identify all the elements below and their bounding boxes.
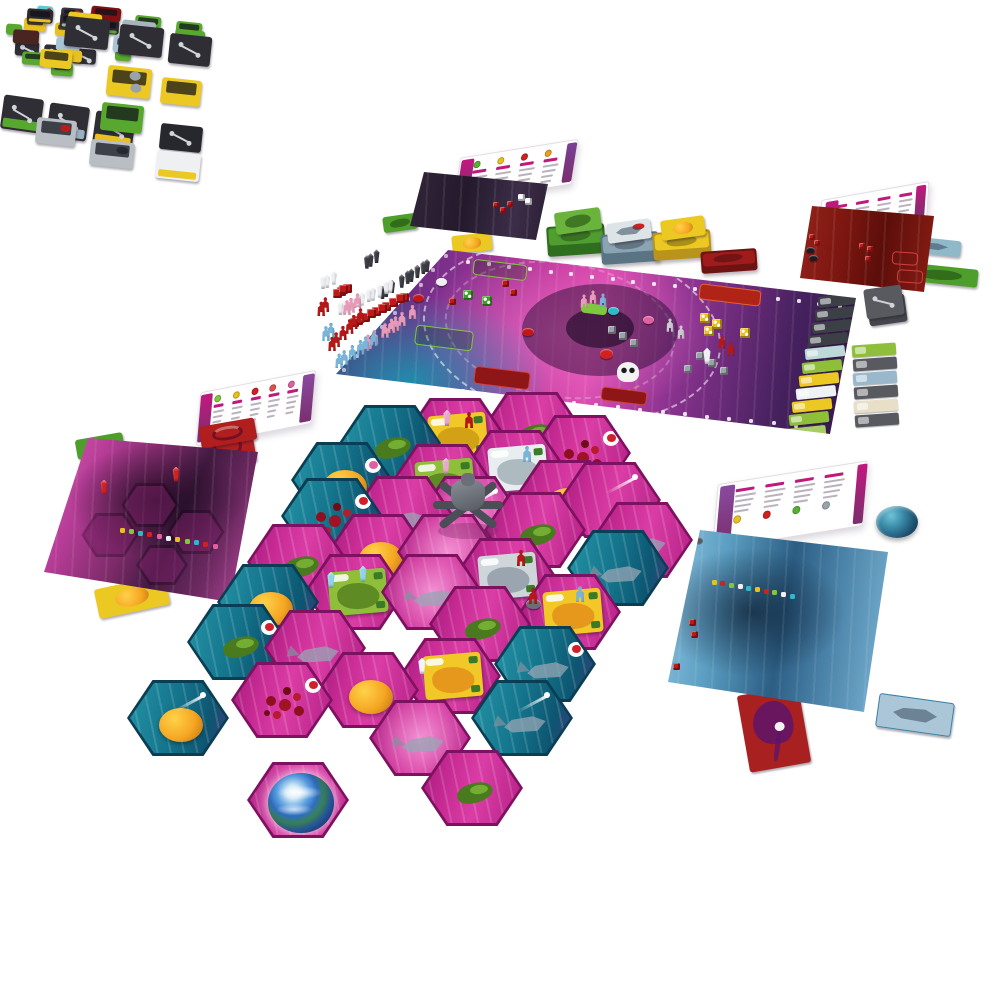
track-dot	[461, 389, 465, 393]
badge-center	[265, 623, 274, 631]
track-dot	[342, 368, 346, 372]
text-line	[899, 203, 912, 207]
card-edge	[857, 416, 869, 424]
text-line	[267, 414, 275, 418]
red-cube-supply-piece	[339, 285, 348, 294]
badge-center	[572, 645, 581, 653]
yellow-strip-tile	[451, 232, 493, 254]
column-icon	[232, 391, 240, 400]
white-die	[518, 194, 525, 201]
column-icon	[251, 387, 259, 396]
blue-translucent-strip	[875, 693, 955, 737]
track-dot	[594, 403, 598, 407]
text-line	[286, 405, 295, 409]
mini-icon	[755, 587, 760, 592]
mini-icon	[138, 531, 143, 536]
tile-screen	[44, 51, 69, 62]
track-dot	[693, 287, 697, 291]
hex-outline-inner	[84, 516, 135, 554]
card-icon	[471, 685, 480, 692]
red-cube-supply-piece	[378, 304, 387, 313]
planet-disc-token	[876, 506, 918, 538]
yellow-tile	[39, 48, 73, 69]
text-heading	[269, 392, 279, 397]
text-line	[823, 494, 838, 498]
text-line	[734, 503, 751, 508]
supply-card	[854, 398, 899, 413]
hex-streaks	[474, 683, 570, 753]
hex-tile-planet2	[127, 680, 229, 756]
card-edge	[814, 323, 825, 331]
yellow-die	[740, 328, 750, 338]
text-heading	[765, 482, 784, 488]
tile-oval	[130, 83, 142, 93]
card-icon	[376, 601, 385, 608]
red-cube	[500, 207, 506, 213]
light-streaks	[668, 530, 888, 712]
badge-center	[309, 681, 318, 689]
stack-top	[702, 250, 755, 266]
tile-label	[157, 169, 196, 180]
swirl-art	[211, 424, 244, 443]
column-icon	[792, 505, 801, 514]
track-dot	[705, 415, 709, 419]
text-line	[268, 398, 279, 402]
text-line	[231, 411, 241, 415]
badge-center	[359, 497, 368, 505]
black-disc	[806, 247, 815, 253]
track-dot	[683, 412, 687, 416]
green-die	[482, 296, 492, 306]
circuit-trace	[13, 108, 29, 119]
text-line	[877, 202, 891, 207]
column-icon	[473, 160, 481, 168]
track-dot	[797, 299, 801, 303]
card-edge	[856, 402, 868, 410]
track-dot	[616, 405, 620, 409]
red-cube	[502, 280, 509, 287]
planet-art	[462, 236, 481, 249]
red-cube	[507, 201, 513, 207]
red-disc	[413, 294, 424, 302]
text-columns	[731, 469, 848, 540]
column-icon	[762, 510, 771, 519]
gray-cube	[696, 352, 704, 360]
mini-icon	[194, 540, 199, 545]
circuit-trace	[875, 299, 892, 305]
color-band	[853, 463, 868, 524]
track-dot	[444, 254, 448, 258]
text-line	[286, 411, 294, 415]
text-heading	[543, 157, 558, 162]
text-heading	[472, 169, 487, 174]
text-line	[540, 180, 551, 184]
brown-panel	[13, 29, 40, 45]
card-edge	[855, 360, 867, 368]
text-line	[287, 400, 297, 404]
hex-face	[234, 665, 330, 735]
comet-head	[200, 692, 206, 698]
red-cube	[814, 240, 820, 246]
text-line	[542, 163, 558, 168]
planet	[159, 708, 203, 742]
track-dot	[631, 280, 635, 284]
gray-token	[694, 537, 703, 543]
player-board-purple	[410, 172, 548, 240]
track-dot	[572, 401, 576, 405]
earth-clouds	[273, 780, 326, 822]
text-line	[899, 198, 913, 203]
circuit-tile	[118, 24, 165, 58]
badge-center	[607, 434, 616, 442]
text-column	[540, 147, 563, 183]
text-line	[268, 404, 278, 408]
text-line	[518, 172, 532, 176]
track-dot	[350, 378, 354, 382]
track-dot	[652, 282, 656, 286]
yellow-tile-ovals	[106, 65, 153, 99]
mini-icon	[772, 590, 777, 595]
card-edge	[807, 350, 818, 358]
card-edge	[817, 310, 828, 318]
text-heading	[878, 196, 891, 201]
text-line	[519, 167, 535, 172]
yellow-die	[700, 313, 710, 323]
card-edge	[810, 337, 821, 345]
text-line	[231, 405, 242, 409]
text-heading	[250, 396, 260, 401]
ship-cockpit	[461, 473, 476, 486]
white-disc	[436, 278, 447, 286]
track-dot	[394, 383, 398, 387]
black-disc	[809, 255, 818, 261]
card-header	[491, 450, 509, 459]
text-heading	[213, 403, 223, 408]
track-dot	[611, 277, 615, 281]
color-band	[561, 142, 577, 183]
text-heading	[899, 192, 912, 197]
text-line	[823, 489, 840, 494]
gray-cube	[684, 365, 692, 373]
cyan-disc	[608, 307, 619, 315]
gray-tile-stack	[863, 285, 905, 320]
text-line	[824, 484, 843, 489]
card-edge	[794, 403, 805, 411]
column-icon	[520, 153, 528, 161]
card-edge	[798, 389, 809, 397]
text-line	[855, 206, 869, 211]
track-dot	[483, 392, 487, 396]
card-icon	[461, 462, 470, 469]
red-flora	[279, 699, 291, 711]
mini-icon	[129, 529, 134, 534]
text-column	[791, 474, 819, 531]
red-cube	[865, 256, 871, 262]
gray-cube	[630, 339, 638, 347]
card-icon	[524, 556, 533, 563]
red-flora	[329, 515, 341, 527]
mini-icon	[157, 534, 162, 539]
hex-face	[130, 683, 226, 753]
hex-tile-earth	[247, 762, 349, 838]
black-tile	[159, 123, 203, 153]
text-line	[542, 169, 556, 173]
yellow-die	[704, 326, 714, 336]
column-icon	[288, 380, 296, 389]
card-icon	[374, 572, 383, 579]
column-icon	[269, 384, 277, 393]
player-board-magenta	[44, 438, 258, 602]
track-dot	[393, 311, 397, 315]
text-line	[794, 494, 811, 499]
card-icon	[591, 621, 600, 628]
track-dot	[661, 410, 665, 414]
pink-disc	[643, 316, 654, 324]
survey-card-yellow2	[422, 652, 484, 701]
tile-label	[28, 18, 51, 23]
card-header	[546, 594, 564, 603]
circuit-tile	[64, 16, 111, 50]
text-line	[735, 498, 754, 503]
text-line	[250, 402, 261, 406]
supply-card	[853, 370, 898, 385]
hex-face	[424, 753, 520, 823]
mini-icon	[746, 586, 751, 591]
card-header	[481, 558, 499, 567]
text-line	[249, 413, 258, 417]
light-streaks	[410, 172, 548, 240]
text-heading	[496, 165, 511, 170]
gray-base-disc	[526, 599, 541, 610]
mini-icon	[729, 583, 734, 588]
supply-card	[854, 412, 899, 427]
tile-screen	[106, 106, 139, 122]
creature-art	[564, 214, 591, 229]
mini-icon	[213, 544, 218, 549]
mini-icon	[120, 528, 125, 533]
text-line	[213, 409, 224, 413]
text-line	[764, 498, 781, 503]
mini-icon	[166, 536, 171, 541]
mini-icon	[764, 589, 769, 594]
card-icon	[534, 448, 543, 455]
text-heading	[856, 200, 869, 205]
red-cube	[867, 246, 873, 252]
card-edge	[801, 376, 812, 384]
alien-art	[750, 698, 797, 747]
player-board-blue	[668, 530, 888, 712]
dark-tile-yellow-header	[27, 8, 54, 24]
circuit-trace	[131, 35, 149, 46]
card-edge	[788, 429, 799, 437]
hex-face	[250, 765, 346, 835]
gray-cube	[608, 326, 616, 334]
empty-card-slot	[892, 251, 919, 266]
color-band	[299, 373, 315, 423]
card-edge	[791, 416, 802, 424]
text-column	[731, 483, 759, 540]
mini-icon	[175, 537, 180, 542]
tile-label	[2, 118, 38, 132]
circuit-trace	[172, 133, 189, 143]
track-dot	[439, 387, 443, 391]
text-line	[764, 493, 783, 498]
creature-art	[390, 218, 410, 229]
player-board-red	[800, 206, 934, 292]
card-edge	[855, 374, 867, 382]
board-game-product-photo	[0, 0, 1000, 1000]
column-icon	[733, 515, 742, 524]
text-heading	[795, 477, 814, 483]
text-column	[761, 479, 789, 536]
column-icon	[822, 501, 831, 510]
column-icon	[544, 149, 552, 157]
text-line	[794, 488, 813, 493]
gray-cube	[619, 332, 627, 340]
text-line	[793, 499, 808, 503]
circuit-trace	[77, 27, 95, 38]
track-dot	[772, 421, 776, 425]
skull-icon	[617, 362, 639, 382]
hex-outline-inner	[124, 486, 175, 524]
mini-icon	[185, 539, 190, 544]
supply-card	[853, 384, 898, 399]
white-die	[525, 198, 532, 205]
text-line	[541, 174, 554, 178]
column-icon	[214, 394, 222, 403]
card-art	[431, 665, 475, 694]
mini-icon	[720, 581, 725, 586]
color-band	[914, 185, 926, 220]
earth-planet	[268, 773, 334, 833]
green-tile	[100, 102, 145, 134]
text-heading	[824, 472, 843, 478]
card-edge	[854, 346, 866, 354]
track-dot	[590, 275, 594, 279]
text-heading	[520, 161, 535, 166]
text-heading	[287, 389, 297, 394]
stack-art	[714, 253, 743, 263]
planet	[349, 680, 393, 714]
comet-head	[544, 692, 550, 698]
red-cube	[689, 619, 696, 626]
gray-tile	[89, 139, 135, 169]
tile-screen	[166, 81, 197, 96]
alien-ship-miniature	[431, 471, 505, 534]
fish-art	[892, 704, 938, 726]
survey-card-green	[327, 568, 389, 617]
mini-icon	[738, 584, 743, 589]
badge-center	[369, 461, 378, 469]
track-dot	[776, 297, 780, 301]
tile-screen	[30, 10, 50, 18]
red-cube-supply-piece	[396, 294, 405, 303]
red-cube	[510, 289, 517, 296]
track-dot	[727, 417, 731, 421]
circuit-tile	[168, 33, 213, 67]
track-dot	[419, 283, 423, 287]
text-column	[820, 469, 848, 526]
clear-crystal-supply-piece	[329, 271, 338, 285]
supply-card	[852, 356, 897, 371]
text-line	[250, 407, 260, 411]
card-header	[426, 658, 444, 667]
text-line	[877, 207, 890, 211]
track-dot	[673, 284, 677, 288]
text-heading	[232, 399, 242, 404]
text-line	[763, 504, 778, 508]
card-art	[336, 581, 380, 610]
red-cube	[859, 243, 865, 249]
gray-tile	[35, 117, 77, 147]
gray-cube	[720, 367, 728, 375]
card-icon	[589, 592, 598, 599]
yellow-tile	[160, 77, 202, 107]
card-edge	[856, 388, 868, 396]
red-cube	[691, 631, 698, 638]
card-edge	[804, 363, 815, 371]
track-dot	[372, 380, 376, 384]
text-line	[268, 409, 277, 413]
mini-icon	[203, 542, 208, 547]
mini-icon	[781, 592, 786, 597]
text-line	[495, 171, 511, 176]
text-line	[213, 414, 223, 418]
red-button-disc	[600, 349, 613, 358]
card-icon	[474, 416, 483, 423]
white-yellow-tile	[155, 150, 202, 182]
red-cube	[493, 202, 499, 208]
track-dot	[466, 260, 470, 264]
mini-icon	[790, 594, 795, 599]
text-line	[287, 395, 298, 399]
green-die	[463, 290, 473, 300]
text-heading	[736, 486, 755, 492]
text-column	[266, 382, 282, 426]
red-cube	[673, 663, 680, 670]
red-cube-supply-piece	[367, 309, 376, 318]
red-cube	[449, 298, 456, 305]
empty-card-slot	[897, 269, 924, 284]
track-dot	[417, 385, 421, 389]
mini-icon	[712, 580, 717, 585]
column-icon	[497, 157, 505, 165]
comet-head	[632, 474, 638, 480]
black-crystal-supply-piece	[397, 274, 406, 288]
text-line	[898, 209, 909, 213]
hex-face	[474, 683, 570, 753]
card-icon	[469, 656, 478, 663]
text-line	[734, 509, 749, 513]
track-dot	[549, 270, 553, 274]
hex-outline-inner	[139, 548, 185, 582]
supply-card	[852, 342, 897, 357]
card-edge	[820, 297, 831, 305]
red-tile-flat	[700, 248, 757, 274]
circuit-trace	[181, 44, 198, 54]
planet-art	[672, 220, 694, 235]
